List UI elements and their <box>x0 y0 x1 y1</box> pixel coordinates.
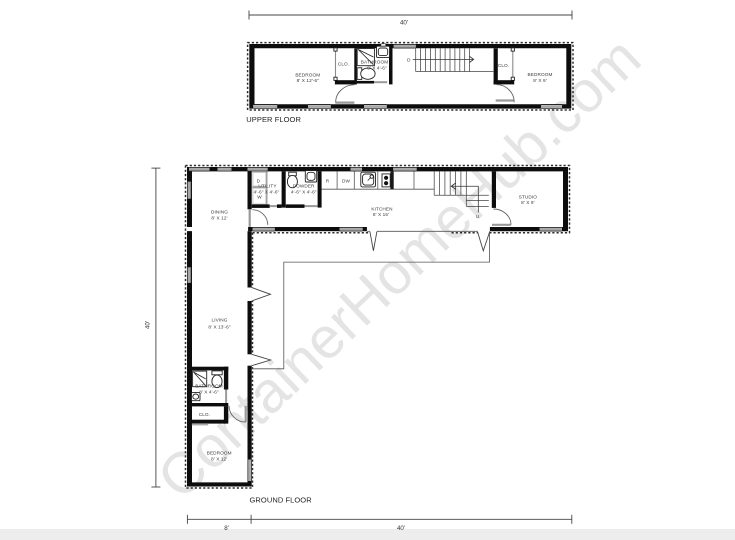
svg-text:ContainerHomeHub.com: ContainerHomeHub.com <box>145 25 653 512</box>
svg-text:BATHROOM: BATHROOM <box>195 383 223 388</box>
svg-text:D: D <box>407 57 411 62</box>
svg-text:UPPER FLOOR: UPPER FLOOR <box>246 115 301 124</box>
svg-text:W: W <box>257 194 262 199</box>
svg-text:BEDROOM: BEDROOM <box>528 72 553 77</box>
svg-text:8' X 13'-6": 8' X 13'-6" <box>208 325 231 330</box>
svg-text:8' X 12': 8' X 12' <box>211 456 227 461</box>
svg-text:CLO.: CLO. <box>199 412 210 417</box>
svg-text:8': 8' <box>224 525 229 532</box>
svg-text:CLO.: CLO. <box>338 61 349 66</box>
svg-text:8' X 9': 8' X 9' <box>533 78 546 83</box>
svg-text:R: R <box>326 178 330 183</box>
svg-text:CLO.: CLO. <box>498 63 509 68</box>
svg-text:KITCHEN: KITCHEN <box>371 206 392 211</box>
svg-text:BEDROOM: BEDROOM <box>295 73 320 78</box>
svg-text:STUDIO: STUDIO <box>519 194 538 199</box>
svg-text:BEDROOM: BEDROOM <box>207 451 232 456</box>
svg-text:8' X 12': 8' X 12' <box>211 216 227 221</box>
svg-text:BATHROOM: BATHROOM <box>361 59 389 64</box>
svg-text:DINING: DINING <box>211 210 228 215</box>
svg-text:8' X 4'-6": 8' X 4'-6" <box>367 66 387 71</box>
svg-text:DW: DW <box>342 178 350 183</box>
svg-text:4'-6" X 4'-6": 4'-6" X 4'-6" <box>291 189 317 194</box>
svg-text:POWDER: POWDER <box>293 184 315 189</box>
svg-text:40': 40' <box>145 321 152 329</box>
svg-text:8' X 4'-6": 8' X 4'-6" <box>199 389 219 394</box>
svg-text:40': 40' <box>397 525 405 532</box>
svg-text:D: D <box>257 178 261 183</box>
svg-text:UTILITY: UTILITY <box>258 184 277 189</box>
svg-text:GROUND FLOOR: GROUND FLOOR <box>250 495 313 504</box>
svg-text:40': 40' <box>400 20 408 27</box>
svg-text:U: U <box>476 214 480 219</box>
svg-text:LIVING: LIVING <box>212 317 228 322</box>
svg-text:8' X 12'-6": 8' X 12'-6" <box>297 78 320 83</box>
svg-text:8' X 15': 8' X 15' <box>373 212 389 217</box>
svg-text:8' X 9': 8' X 9' <box>521 200 534 205</box>
